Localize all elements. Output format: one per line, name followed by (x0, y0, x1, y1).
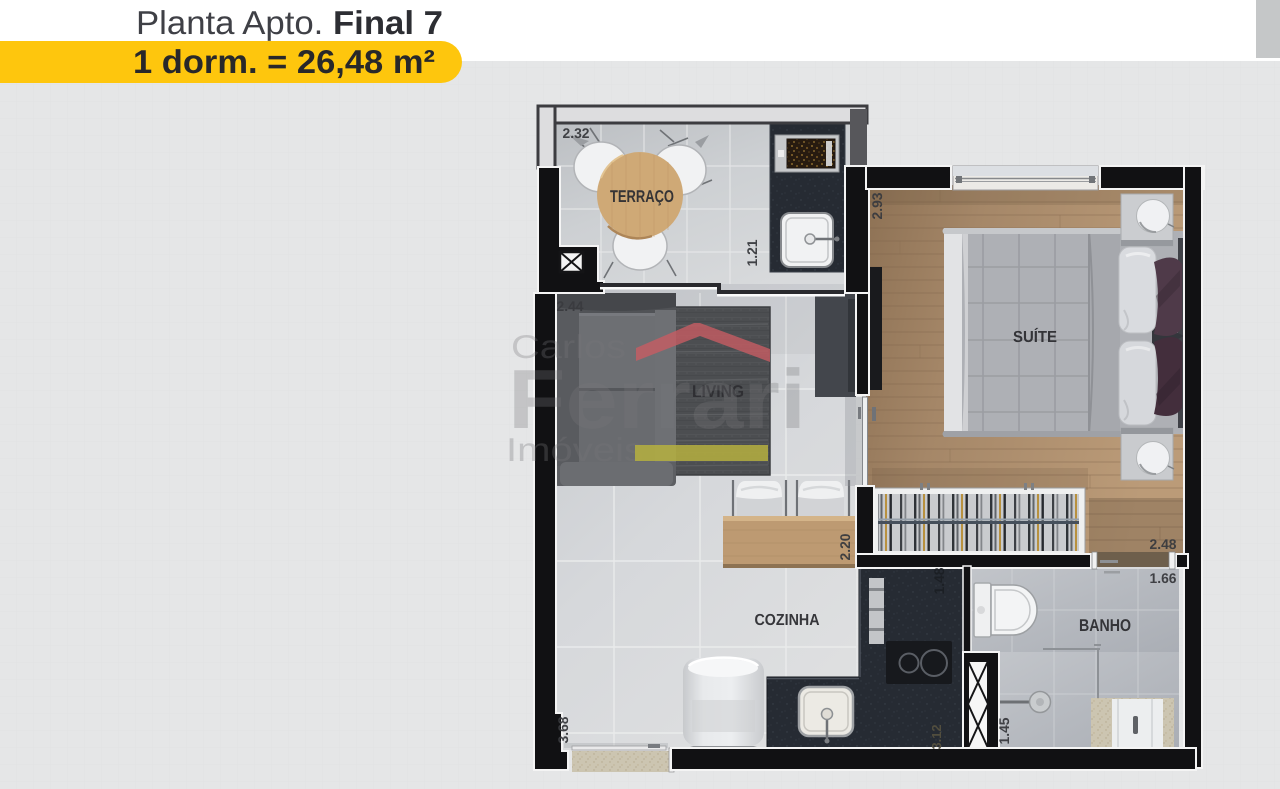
svg-text:3.68: 3.68 (555, 716, 571, 743)
svg-text:1 dorm. = 26,48 m²: 1 dorm. = 26,48 m² (133, 43, 435, 80)
svg-text:TERRAÇO: TERRAÇO (610, 187, 674, 206)
svg-text:Imóveis: Imóveis (506, 431, 644, 468)
svg-text:2.93: 2.93 (869, 192, 885, 219)
svg-text:BANHO: BANHO (1079, 616, 1131, 635)
svg-text:1.48: 1.48 (931, 567, 947, 594)
svg-text:COZINHA: COZINHA (755, 612, 820, 629)
svg-text:2.32: 2.32 (563, 125, 590, 141)
svg-text:1.21: 1.21 (744, 239, 760, 266)
svg-text:1.45: 1.45 (996, 717, 1012, 744)
svg-text:Planta Apto. Final 7: Planta Apto. Final 7 (136, 4, 443, 41)
svg-text:2.44: 2.44 (557, 298, 584, 314)
svg-text:3.12: 3.12 (929, 725, 944, 750)
svg-text:1.66: 1.66 (1150, 570, 1177, 586)
svg-text:2.20: 2.20 (837, 533, 853, 560)
svg-text:SUÍTE: SUÍTE (1013, 327, 1057, 346)
svg-text:2.48: 2.48 (1150, 536, 1177, 552)
